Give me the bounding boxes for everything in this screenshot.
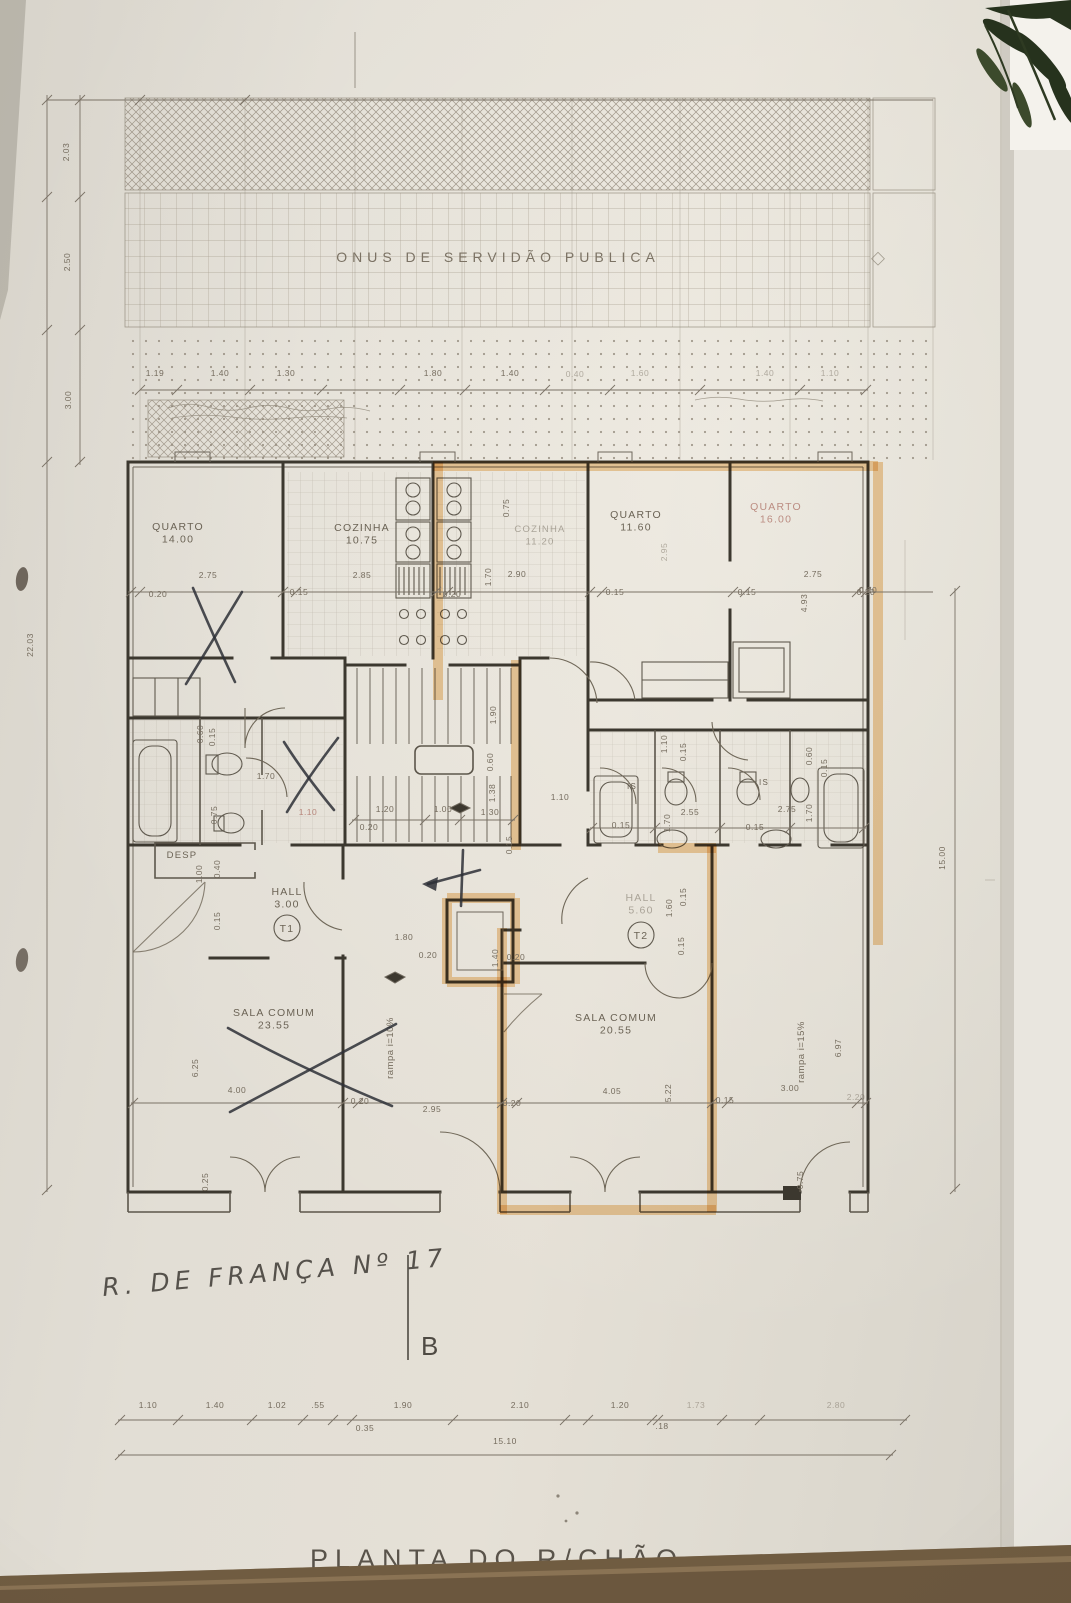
- annotations: B R. DE FRANÇA Nº 17 PLANTA DO R/CHÃO: [101, 1243, 684, 1574]
- stair-arrow: [450, 803, 470, 813]
- dim-label: 0.25: [200, 1173, 210, 1192]
- servitude-bands: ONUS DE SERVIDÃO PUBLICA: [125, 98, 935, 462]
- dim-label: 0.60: [804, 747, 814, 766]
- room-area-label: 23.55: [258, 1020, 290, 1032]
- dim-label: 1.40: [756, 368, 775, 378]
- dim-label: 1.73: [687, 1400, 706, 1410]
- dim-label: 0.15: [738, 587, 757, 597]
- dim-label: 5.22: [663, 1084, 673, 1103]
- dim-label: 0.60: [485, 753, 495, 772]
- dim-label: 0.75: [209, 806, 219, 825]
- dim-label: 0.35: [356, 1423, 375, 1433]
- dim-label: 1.40: [490, 949, 500, 968]
- dim-label: 6.97: [833, 1039, 843, 1058]
- room-label: SALA COMUM: [233, 1007, 315, 1019]
- dim-label: 1.60: [664, 899, 674, 918]
- room-label: QUARTO: [152, 521, 204, 533]
- dim-label: 0.20: [507, 952, 526, 962]
- room-label: COZINHA: [514, 524, 565, 535]
- ramp-arrow: [385, 972, 405, 983]
- dim-label: 1.02: [268, 1400, 287, 1410]
- dim-label: 1.70: [257, 771, 276, 781]
- room-label: HALL: [271, 886, 302, 898]
- ramp-label: rampa i=15%: [796, 1021, 807, 1083]
- dim-label: 1.10: [659, 735, 669, 754]
- dim-label: 2.95: [659, 543, 669, 562]
- dim-label: 3.00: [63, 391, 73, 410]
- room-label: QUARTO: [750, 501, 802, 513]
- dim-label: 4.05: [603, 1086, 622, 1096]
- dim-label: 1.70: [662, 814, 672, 833]
- dim-label: 0.15: [746, 822, 765, 832]
- dim-label: 0.40: [212, 860, 222, 879]
- dim-label: 0.15: [290, 587, 309, 597]
- room-area-label: 10.75: [346, 535, 378, 547]
- dim-label: 1.00: [434, 804, 453, 814]
- dim-label: 1.10: [551, 792, 570, 802]
- dim-label: 3.00: [781, 1083, 800, 1093]
- dim-label: 1.10: [299, 807, 318, 817]
- dim-label: 1.10: [821, 368, 840, 378]
- dim-label: 0.15: [678, 743, 688, 762]
- dim-label: 1.40: [501, 368, 520, 378]
- dim-label: 2.75: [199, 570, 218, 580]
- dim-label: 2.95: [423, 1104, 442, 1114]
- dim-label: 2.55: [681, 807, 700, 817]
- dim-label: 0.15: [678, 888, 688, 907]
- dim-label: .18: [655, 1421, 668, 1431]
- dim-label: 1.20: [611, 1400, 630, 1410]
- elevator: [415, 746, 473, 774]
- room-label: SALA COMUM: [575, 1012, 657, 1024]
- dim-label: 1.19: [146, 368, 165, 378]
- dim-label: 0.20: [503, 1098, 522, 1108]
- room-area-label: 14.00: [162, 534, 194, 546]
- dim-label: 4.93: [799, 594, 809, 613]
- room-area-label: 11.20: [525, 537, 554, 548]
- room-label: QUARTO: [610, 509, 662, 521]
- dim-label: 0.15: [212, 912, 222, 931]
- section-marker-b: B: [421, 1331, 438, 1361]
- dim-label: 0.20: [360, 822, 379, 832]
- punch-holes: [14, 566, 29, 972]
- dim-label: 0.15: [819, 759, 829, 778]
- background-right-strip: [1000, 0, 1071, 1603]
- room-label: COZINHA: [334, 522, 390, 534]
- dim-label: 2.10: [511, 1400, 530, 1410]
- dim-label: 0.20: [419, 950, 438, 960]
- unit-marker-label: T2: [634, 930, 649, 942]
- dim-label: 1.40: [206, 1400, 225, 1410]
- dim-label: 2.75: [778, 804, 797, 814]
- dim-label: 0.15: [207, 728, 217, 747]
- dim-label: 2.20: [847, 1092, 866, 1102]
- dim-label: 1.90: [394, 1400, 413, 1410]
- dim-label: 0.40: [566, 369, 585, 379]
- dim-label: 1.40: [211, 368, 230, 378]
- unit-marker-label: T1: [280, 923, 295, 935]
- room-area-label: 11.60: [620, 522, 652, 534]
- dim-label: 0.15: [606, 587, 625, 597]
- dim-label: .55: [311, 1400, 324, 1410]
- room-area-label: 3.00: [274, 899, 299, 911]
- dim-label: 1.00: [194, 865, 204, 884]
- dim-label: 22.03: [25, 633, 35, 657]
- room-label: IS: [627, 782, 637, 791]
- dim-label: 1.80: [424, 368, 443, 378]
- dim-label: 2.85: [353, 570, 372, 580]
- dim-label: 1.10: [139, 1400, 158, 1410]
- room-label: HALL: [625, 892, 656, 904]
- dim-label: 2.80: [827, 1400, 846, 1410]
- dim-label: 1.70: [483, 568, 493, 587]
- room-area-label: 5.60: [628, 905, 653, 917]
- room-area-label: 16.00: [760, 514, 792, 526]
- handwritten-address: R. DE FRANÇA Nº 17: [101, 1243, 449, 1302]
- dim-label: 0.15: [612, 820, 631, 830]
- room-label: DESP: [167, 850, 198, 861]
- dim-label: 2.75: [804, 569, 823, 579]
- floor-plan-drawing: ONUS DE SERVIDÃO PUBLICA: [0, 0, 1071, 1603]
- dim-label: 2.90: [508, 569, 527, 579]
- photo-of-floor-plan: ONUS DE SERVIDÃO PUBLICA: [0, 0, 1071, 1603]
- dim-label: 15.10: [493, 1436, 517, 1446]
- dim-label: 6.25: [190, 1059, 200, 1078]
- dim-label: 0.60: [195, 725, 205, 744]
- dim-label: 2.03: [61, 143, 71, 162]
- dim-label: 0.75: [795, 1171, 805, 1190]
- dim-label: 0.15: [716, 1095, 735, 1105]
- dim-label: 1.60: [631, 368, 650, 378]
- dim-label: 0.20: [859, 585, 878, 595]
- room-label: IS: [759, 778, 769, 787]
- dim-label: 0.20: [351, 1096, 370, 1106]
- servitude-band-label: ONUS DE SERVIDÃO PUBLICA: [336, 249, 660, 265]
- dim-label: 0.20: [149, 589, 168, 599]
- room-area-label: 20.55: [600, 1025, 632, 1037]
- dim-label: 4.00: [228, 1085, 247, 1095]
- tiled-floors: [130, 472, 866, 843]
- dim-label: 1.70: [804, 804, 814, 823]
- dim-label: 0.15: [504, 836, 514, 855]
- dim-label: 1.30: [481, 807, 500, 817]
- dim-label: 0.75: [501, 499, 511, 518]
- dim-label: 1.30: [277, 368, 296, 378]
- dim-label: 2.50: [62, 253, 72, 272]
- dim-label: 15.00: [937, 846, 947, 870]
- ramp-labels: rampa i=10%rampa i=15%: [385, 1017, 807, 1083]
- dim-label: 0.20: [443, 589, 462, 599]
- unit-markers: T1T2: [274, 915, 654, 948]
- dim-label: 1.20: [376, 804, 395, 814]
- paper-edge-shadow: [0, 0, 26, 320]
- dim-label: 0.15: [676, 937, 686, 956]
- dim-label: 1.90: [488, 706, 498, 725]
- dim-label: 1.38: [487, 784, 497, 803]
- dim-label: 1.80: [395, 932, 414, 942]
